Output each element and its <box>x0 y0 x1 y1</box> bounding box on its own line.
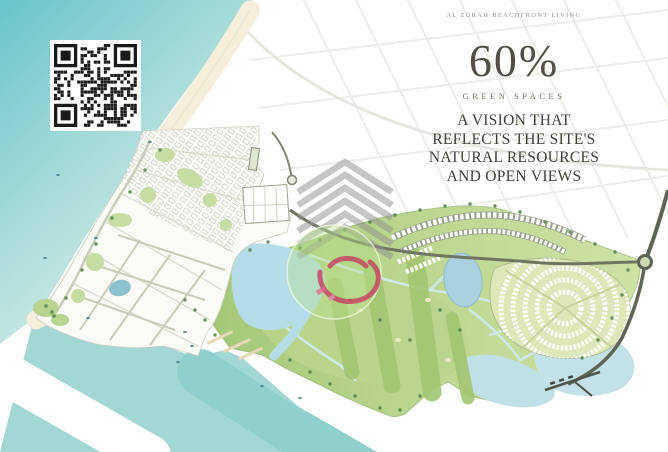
green-spaces-label: GREEN SPACES <box>394 91 634 101</box>
green-spaces-percentage: 60% <box>394 34 634 87</box>
highlight-circle <box>287 225 381 319</box>
vision-statement: A VISION THAT REFLECTS THE SITE'S NATURA… <box>394 112 634 186</box>
qr-code <box>50 40 141 131</box>
tagline: AL ZORAH BEACHFRONT LIVING <box>394 12 634 19</box>
qr-code-image <box>54 44 137 127</box>
brochure-page: AL ZORAH BEACHFRONT LIVING 60% GREEN SPA… <box>0 0 668 452</box>
roundabout <box>639 256 652 269</box>
